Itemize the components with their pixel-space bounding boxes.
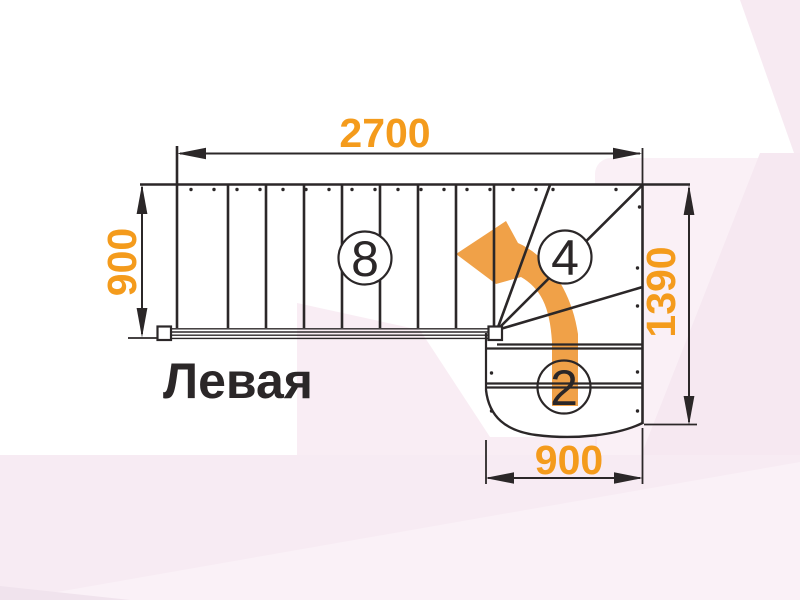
newel-post-left [158, 327, 172, 341]
newel-post-right [489, 327, 503, 341]
plan-title: Левая [163, 353, 313, 409]
dim-right-label: 1390 [638, 246, 684, 337]
dim-bottom-label: 900 [535, 437, 603, 483]
stair-plan-page: { "drawing": { "title": "Левая", "dimens… [0, 0, 800, 600]
staircase-plan-drawing: 8 4 2 2700 900 1390 900 Левая [0, 0, 800, 600]
dim-top-label: 2700 [339, 110, 430, 156]
step-count-straight-label: 8 [351, 231, 379, 287]
dim-left-label: 900 [99, 228, 145, 296]
step-count-winders-label: 4 [551, 230, 579, 286]
step-count-bottom-label: 2 [550, 360, 578, 416]
